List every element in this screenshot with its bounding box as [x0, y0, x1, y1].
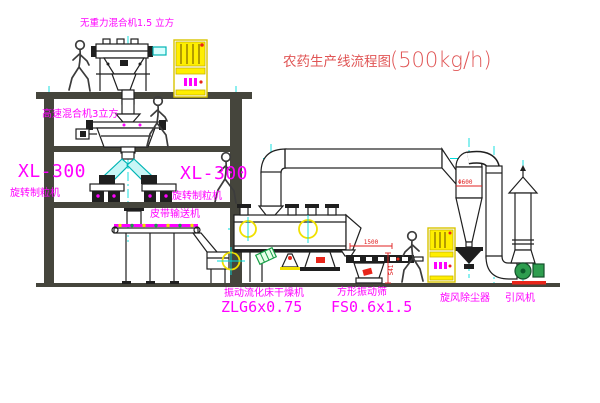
fan-motor	[533, 264, 544, 277]
indicator-lamp	[449, 232, 452, 235]
label-cyclone: 旋风除尘器	[440, 291, 490, 304]
outlet-stub	[153, 47, 166, 55]
label-high-speed-mixer: 高速混合机3立方	[42, 107, 118, 120]
dryer-nozzles	[237, 204, 339, 215]
dim-length: 1500	[364, 239, 379, 246]
cabinet-display-icon	[184, 78, 197, 86]
cyclone-marking: Φ600	[458, 179, 473, 186]
diagram-capacity: (500kg/h)	[390, 48, 492, 72]
belt-conveyor	[112, 224, 217, 284]
label-dryer-model: ZLG6x0.75	[221, 298, 302, 316]
indicator-lamp	[200, 43, 204, 47]
cyclone-cone	[456, 198, 482, 242]
person-roof	[69, 41, 90, 91]
dim-height: 541	[388, 264, 395, 275]
fan-base	[512, 281, 546, 285]
mixer-bowl	[97, 128, 155, 147]
label-sieve-model: FS0.6x1.5	[331, 298, 412, 316]
ground-line	[36, 283, 560, 287]
label-granulator-right-name: 旋转制粒机	[172, 189, 222, 202]
discharge-downpipe	[124, 208, 144, 225]
column-right	[230, 99, 242, 284]
diagram-title: 农药生产线流程图	[283, 54, 391, 70]
granulator-right	[142, 184, 176, 202]
floor-slab-3	[44, 202, 242, 208]
label-granulator-left-model: XL-300	[18, 161, 86, 182]
cabinet-display-icon	[434, 262, 447, 269]
dryer-mount-right	[300, 252, 340, 271]
roof-slab	[36, 92, 252, 99]
mixer-lid	[90, 122, 162, 128]
stack-tube	[515, 193, 531, 250]
diagram-svg: Φ600	[0, 0, 600, 403]
control-cabinet-ground	[428, 228, 455, 282]
exhaust-stack	[509, 165, 537, 263]
cyclone-discharge	[457, 251, 481, 264]
label-granulator-left-name: 旋转制粒机	[10, 186, 60, 199]
label-granulator-right-model: XL-300	[180, 163, 248, 184]
feed-funnel	[259, 206, 283, 215]
exhaust-duct	[261, 149, 456, 206]
duct-reducer	[442, 149, 456, 184]
control-cabinet-top	[174, 40, 207, 97]
process-flow-diagram: Φ600	[0, 0, 600, 403]
fluid-bed-dryer	[234, 204, 361, 282]
label-fan: 引风机	[505, 291, 535, 304]
stack-cap	[509, 177, 537, 193]
high-speed-mixer	[76, 99, 166, 153]
label-belt-conveyor: 皮带输送机	[150, 207, 200, 220]
granulator-left	[90, 184, 124, 202]
induced-draft-fan	[512, 263, 546, 285]
label-sieve-name: 方形振动筛	[337, 285, 387, 298]
label-gravity-mixer: 无重力混合机1.5 立方	[80, 17, 174, 29]
